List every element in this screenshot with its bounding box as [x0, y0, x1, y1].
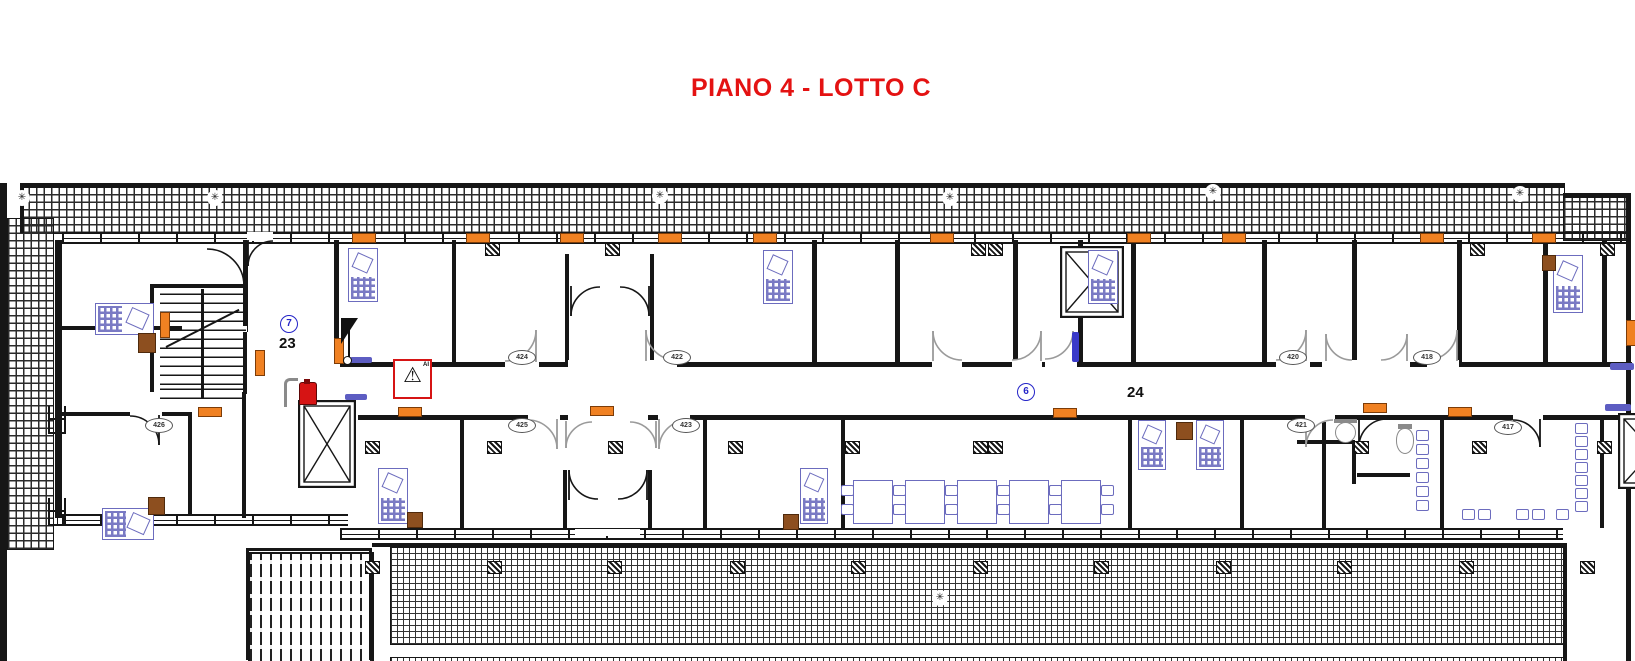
desk-chair-icon: [1557, 260, 1579, 282]
room-number-badge: 417: [1494, 420, 1522, 435]
room-number-badge: 423: [672, 418, 700, 433]
wall: [648, 470, 652, 530]
structural-column: [845, 441, 860, 454]
chair: [1575, 475, 1588, 486]
chair: [945, 485, 958, 496]
meeting-table: [905, 480, 945, 524]
structural-column: [730, 561, 745, 574]
radiator: [160, 312, 170, 338]
door-leaf-mark: [1072, 332, 1079, 362]
railing-post-icon: ✳: [207, 190, 223, 206]
threshold-mark: [345, 394, 367, 400]
structural-column: [1580, 561, 1595, 574]
wall: [1352, 240, 1357, 362]
railing-post-icon: ✳: [652, 188, 668, 204]
desk: [378, 468, 408, 524]
structural-column: [1472, 441, 1487, 454]
chair: [1416, 486, 1429, 497]
door-arc: [247, 240, 273, 266]
structural-column: [973, 561, 988, 574]
wall: [1602, 240, 1607, 362]
warning-sign-icon: ⚠ AI: [393, 359, 432, 399]
meeting-table: [957, 480, 997, 524]
structural-column: [1094, 561, 1109, 574]
desk-shelf-icon: [351, 277, 375, 299]
chair: [893, 485, 906, 496]
structural-column: [728, 441, 743, 454]
wall: [895, 240, 900, 362]
wall: [1563, 193, 1630, 197]
structural-column: [851, 561, 866, 574]
wall: [460, 420, 464, 528]
desk: [1196, 420, 1224, 470]
radiator: [658, 233, 682, 243]
radiator: [198, 407, 222, 417]
zone-number-label: 24: [1127, 384, 1157, 402]
wall: [1262, 240, 1267, 362]
room-number-badge: 424: [508, 350, 536, 365]
warning-sign-tag: AI: [423, 362, 429, 368]
structural-column: [607, 561, 622, 574]
wall: [372, 543, 1563, 547]
meeting-table: [853, 480, 893, 524]
structural-column: [1600, 243, 1615, 256]
structural-column: [365, 561, 380, 574]
desk-chair-icon: [803, 473, 824, 493]
desk-shelf-icon: [1556, 286, 1580, 310]
chair: [1532, 509, 1545, 520]
hose-reel-ring-icon: [343, 356, 352, 365]
chair: [1416, 458, 1429, 469]
desk-chair-icon: [1092, 254, 1114, 276]
chair: [1416, 430, 1429, 441]
door-gap: [1012, 360, 1042, 369]
door-gap: [575, 529, 640, 536]
elevator: [298, 400, 356, 488]
structural-column: [365, 441, 380, 454]
chair: [1575, 501, 1588, 512]
room-number-badge: 418: [1413, 350, 1441, 365]
door-arc: [630, 421, 657, 448]
desk-shelf-icon: [381, 498, 405, 521]
chair: [1575, 449, 1588, 460]
structural-column: [1470, 243, 1485, 256]
wall: [242, 392, 246, 518]
chair: [1478, 509, 1491, 520]
chair: [997, 504, 1010, 515]
chair: [1049, 485, 1062, 496]
hose-reel-flag-icon: [341, 318, 358, 344]
chair: [841, 504, 854, 515]
radiator: [753, 233, 777, 243]
wall: [188, 412, 192, 516]
canopy-stripes: [248, 552, 374, 661]
wall: [1131, 240, 1136, 362]
room-number-badge: 425: [508, 418, 536, 433]
structural-column: [1459, 561, 1474, 574]
radiator: [1448, 407, 1472, 417]
structural-column: [1597, 441, 1612, 454]
desk: [1138, 420, 1166, 470]
radiator: [560, 233, 584, 243]
chair: [1575, 462, 1588, 473]
meeting-table: [1061, 480, 1101, 524]
chair: [1101, 504, 1114, 515]
desk: [348, 248, 378, 302]
wall: [1440, 420, 1444, 528]
chair: [1575, 436, 1588, 447]
structural-column: [1354, 441, 1369, 454]
desk: [1553, 255, 1583, 313]
chair: [1416, 472, 1429, 483]
wall: [1128, 420, 1132, 528]
chair: [893, 504, 906, 515]
cabinet: [407, 512, 423, 528]
threshold-mark: [1605, 404, 1631, 411]
wall: [55, 240, 62, 518]
chair: [1516, 509, 1529, 520]
wall: [158, 412, 190, 416]
structural-column: [485, 243, 500, 256]
room-number-badge: 421: [1287, 418, 1315, 433]
wall: [563, 470, 567, 530]
room-number-badge: 422: [663, 350, 691, 365]
radiator: [930, 233, 954, 243]
wall: [246, 548, 372, 551]
desk-chair-icon: [1141, 424, 1162, 444]
desk: [763, 250, 793, 304]
railing-post-icon: ✳: [1205, 184, 1221, 200]
radiator: [1363, 403, 1387, 413]
threshold-mark: [350, 357, 372, 363]
chair: [997, 485, 1010, 496]
wall: [1600, 420, 1604, 528]
door-arc: [620, 286, 650, 316]
wall: [0, 183, 7, 661]
door-gap: [1322, 360, 1410, 369]
cabinet: [138, 333, 156, 353]
hose-hook-icon: [284, 378, 298, 407]
desk-chair-icon: [125, 307, 149, 330]
structural-column: [487, 441, 502, 454]
wall: [703, 420, 707, 528]
desk-chair-icon: [1199, 424, 1220, 444]
fire-extinguisher-icon: [299, 382, 317, 405]
desk: [95, 303, 154, 335]
desk: [1088, 250, 1118, 304]
radiator: [398, 407, 422, 417]
structural-column: [608, 441, 623, 454]
radiator: [1053, 408, 1077, 418]
desk: [800, 468, 828, 524]
railing-post-icon: ✳: [942, 190, 958, 206]
railing-post-icon: ✳: [14, 190, 30, 206]
desk-shelf-icon: [1141, 447, 1163, 467]
stairs-stringer: [201, 289, 204, 399]
chair: [1049, 504, 1062, 515]
radiator: [466, 233, 490, 243]
floor-plan-canvas: PIANO 4 - LOTTO C: [0, 0, 1635, 661]
chair: [1575, 488, 1588, 499]
chair: [945, 504, 958, 515]
chair: [1101, 485, 1114, 496]
structural-column: [487, 561, 502, 574]
chair: [841, 485, 854, 496]
radiator: [255, 350, 265, 376]
wall: [565, 254, 569, 364]
desk-shelf-icon: [98, 306, 122, 332]
radiator: [590, 406, 614, 416]
radiator: [1532, 233, 1556, 243]
room-number-badge: 426: [145, 418, 173, 433]
desk-chair-icon: [352, 252, 374, 274]
radiator: [1420, 233, 1444, 243]
terrace-hatch: [7, 218, 54, 550]
lower-terrace-hatch: [390, 657, 1565, 661]
door-arc: [207, 248, 245, 286]
wall: [1357, 473, 1410, 477]
cabinet: [148, 497, 165, 515]
desk: [102, 508, 154, 540]
structural-column: [973, 441, 988, 454]
desk-chair-icon: [126, 512, 150, 535]
structural-column: [1216, 561, 1231, 574]
structural-column: [988, 243, 1003, 256]
wall: [1563, 543, 1567, 661]
chair: [1416, 500, 1429, 511]
structural-column: [988, 441, 1003, 454]
door-gap: [932, 360, 962, 369]
chair: [1416, 444, 1429, 455]
door-arc: [1325, 334, 1352, 361]
cabinet: [1176, 422, 1193, 440]
radiator: [352, 233, 376, 243]
meeting-table: [1009, 480, 1049, 524]
elevator: [1618, 413, 1635, 489]
radiator: [1626, 320, 1635, 346]
door-arc: [1381, 334, 1408, 361]
railing-post-icon: ✳: [1512, 186, 1528, 202]
door-arc: [618, 470, 648, 500]
wall: [812, 240, 817, 362]
railing-post-icon: ✳: [932, 590, 948, 606]
toilet-icon: [1396, 428, 1414, 454]
desk-shelf-icon: [1199, 447, 1221, 467]
desk-shelf-icon: [803, 498, 825, 521]
wall: [62, 412, 132, 416]
cabinet: [1542, 255, 1556, 271]
wall: [452, 240, 456, 362]
door-arc: [1045, 331, 1074, 360]
radiator: [1127, 233, 1151, 243]
threshold-mark: [1610, 363, 1634, 370]
terrace-hatch: [20, 187, 1565, 234]
desk-shelf-icon: [105, 511, 126, 537]
door-arc: [570, 286, 600, 316]
window-strip: [340, 528, 1563, 540]
structural-column: [605, 243, 620, 256]
window-strip: [62, 232, 1630, 244]
door-arc: [568, 470, 598, 500]
door-arc: [932, 331, 962, 361]
chair: [1575, 423, 1588, 434]
wall: [1240, 420, 1244, 528]
door-arc: [1012, 331, 1042, 361]
page-title: PIANO 4 - LOTTO C: [511, 74, 1111, 103]
radiator: [1222, 233, 1246, 243]
zone-circle-label: 7: [280, 315, 298, 333]
zone-circle-label: 6: [1017, 383, 1035, 401]
desk-chair-icon: [767, 254, 789, 276]
door-gap: [568, 360, 652, 369]
cabinet: [783, 514, 799, 530]
sink-icon: [1335, 422, 1356, 443]
chair: [1462, 509, 1475, 520]
wall: [246, 548, 249, 660]
zone-number-label: 23: [279, 335, 309, 353]
structural-column: [971, 243, 986, 256]
desk-chair-icon: [382, 473, 404, 495]
chair: [1556, 509, 1569, 520]
door-arc: [565, 421, 592, 448]
structural-column: [1337, 561, 1352, 574]
room-number-badge: 420: [1279, 350, 1307, 365]
wall: [20, 183, 1565, 187]
desk-shelf-icon: [1091, 279, 1115, 301]
desk-shelf-icon: [766, 279, 790, 301]
